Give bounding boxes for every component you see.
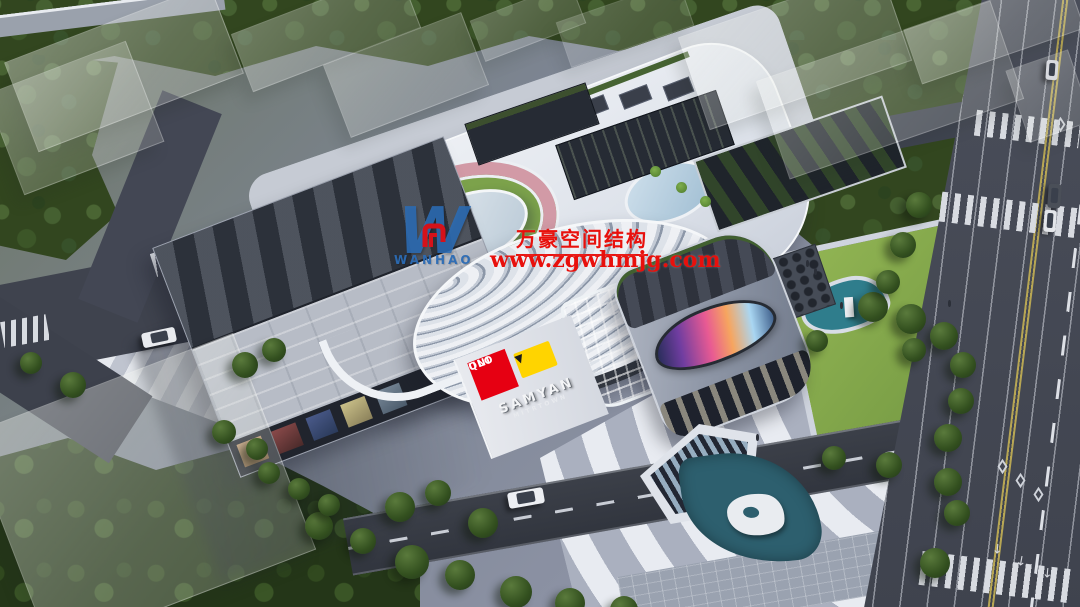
tree: [858, 292, 888, 322]
pedestrian: [806, 260, 809, 267]
brand-sign: ▼: [513, 341, 558, 379]
car-windows: [150, 331, 169, 344]
tree: [906, 192, 932, 218]
tree: [950, 352, 976, 378]
tree: [876, 270, 900, 294]
tree: [902, 338, 926, 362]
tree: [468, 508, 498, 538]
tree: [258, 462, 280, 484]
pedestrian: [948, 300, 951, 307]
tree: [318, 494, 340, 516]
tree: [232, 352, 258, 378]
tree: [395, 545, 429, 579]
tree: [806, 330, 828, 352]
tree: [212, 420, 236, 444]
aerial-render-scene: ↑ ↑ ↑ UNI: [0, 0, 1080, 607]
tree: [896, 304, 926, 334]
tree: [920, 548, 950, 578]
car: [1045, 60, 1058, 81]
pool-sculpture: [725, 490, 787, 538]
palm-tree: [700, 196, 711, 207]
tree: [246, 438, 268, 460]
car: [1043, 210, 1057, 233]
tree: [20, 352, 42, 374]
tree: [934, 424, 962, 452]
tree: [930, 322, 958, 350]
tree: [425, 480, 451, 506]
tree: [948, 388, 974, 414]
tree: [822, 446, 846, 470]
pedestrian: [756, 434, 759, 441]
tree: [500, 576, 532, 607]
car-windows: [516, 491, 536, 504]
uniqlo-sign: UNI QLO: [467, 349, 519, 401]
tree: [60, 372, 86, 398]
palm-tree: [650, 166, 661, 177]
tree: [934, 468, 962, 496]
car-windows: [1051, 187, 1059, 203]
tree: [288, 478, 310, 500]
pond-monument: [844, 297, 854, 318]
tree: [944, 500, 970, 526]
brand-emblem-icon: ▼: [513, 351, 526, 366]
pedestrian: [840, 302, 843, 309]
car-windows: [1047, 213, 1054, 228]
uniqlo-line2: QLO: [467, 354, 495, 374]
lane-arrow-icon: ↑: [991, 540, 1003, 556]
car-windows: [1049, 63, 1056, 76]
tree: [385, 492, 415, 522]
tree: [350, 528, 376, 554]
rooftop-unit: [619, 84, 653, 110]
tree: [876, 452, 902, 478]
tree: [890, 232, 916, 258]
tree: [305, 512, 333, 540]
ad-poster: [306, 409, 339, 441]
tree: [262, 338, 286, 362]
car: [1047, 184, 1062, 209]
pedestrian: [814, 268, 817, 275]
ad-poster: [340, 396, 373, 428]
lane-arrow-icon: ↑: [1041, 564, 1053, 580]
palm-tree: [676, 182, 687, 193]
tree: [445, 560, 475, 590]
